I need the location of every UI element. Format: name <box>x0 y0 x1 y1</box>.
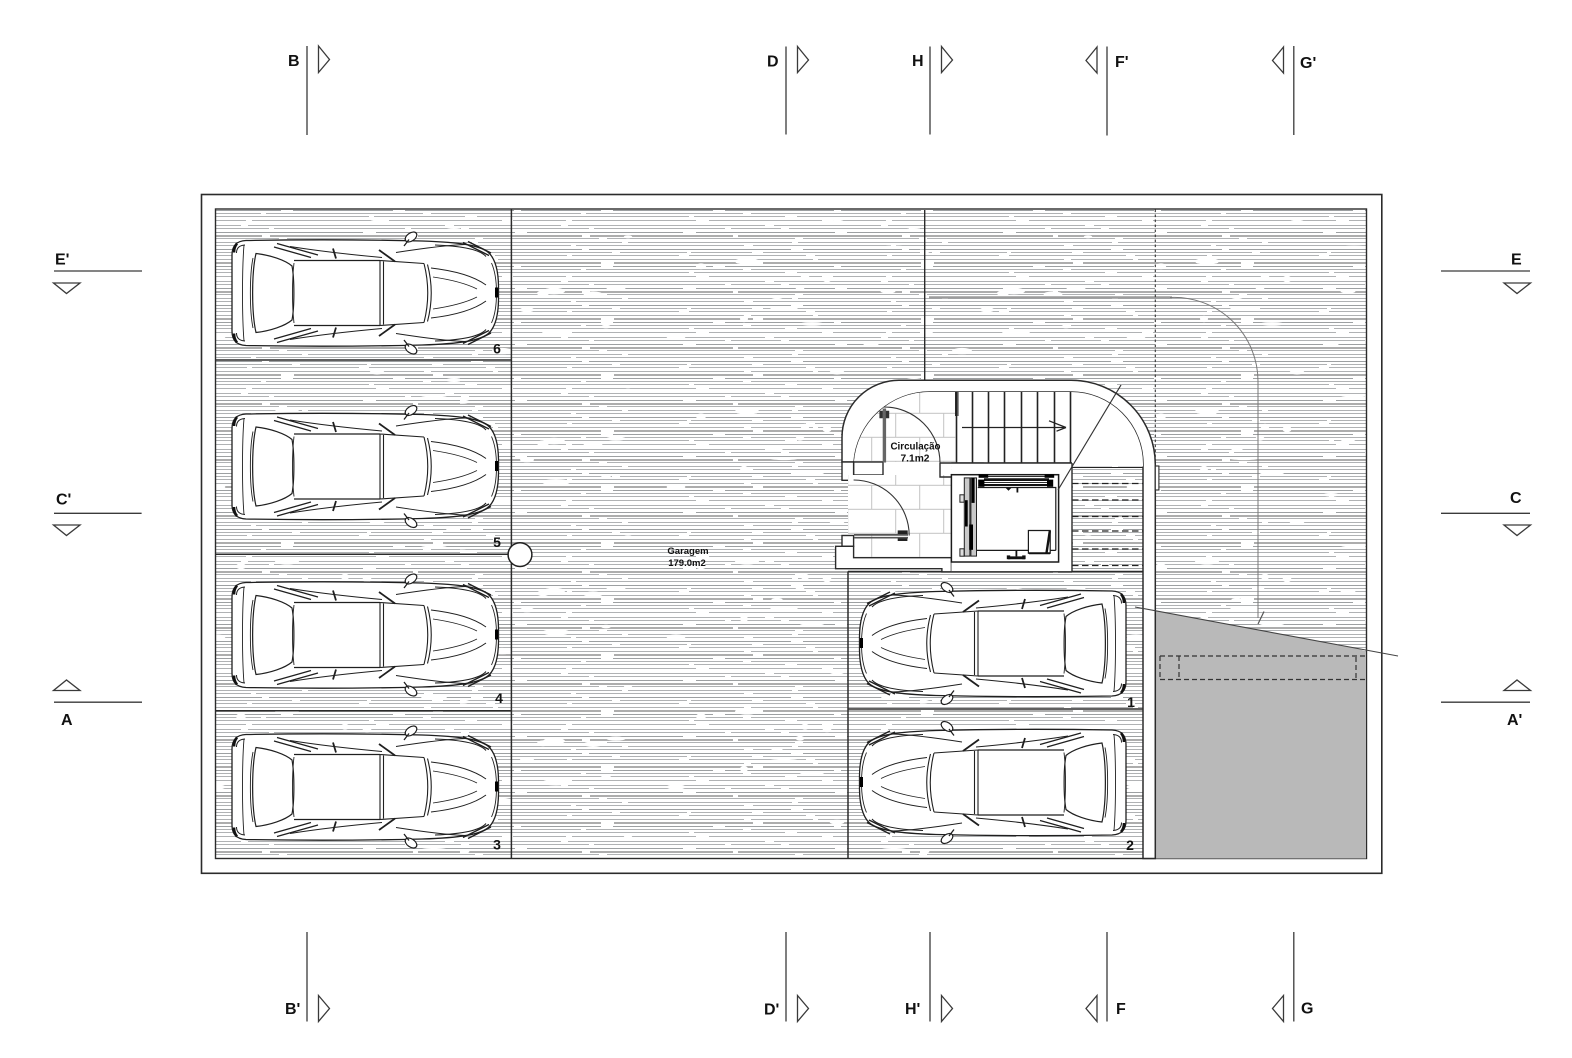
svg-text:6: 6 <box>493 341 501 357</box>
svg-text:7.1m2: 7.1m2 <box>901 454 930 465</box>
svg-text:C: C <box>1510 490 1522 507</box>
svg-text:B: B <box>288 53 300 70</box>
svg-text:A': A' <box>1507 712 1522 729</box>
svg-text:179.0m2: 179.0m2 <box>668 558 706 569</box>
svg-text:G: G <box>1301 1001 1313 1018</box>
svg-text:4: 4 <box>495 690 503 706</box>
svg-text:D': D' <box>764 1002 779 1019</box>
svg-text:Circulação: Circulação <box>891 442 941 453</box>
svg-text:F: F <box>1116 1001 1126 1018</box>
svg-text:B': B' <box>285 1001 300 1018</box>
svg-text:1: 1 <box>1127 694 1135 710</box>
svg-text:E': E' <box>55 252 69 269</box>
svg-text:Garagem: Garagem <box>667 546 708 557</box>
svg-text:3: 3 <box>493 837 501 853</box>
svg-text:2: 2 <box>1126 837 1134 853</box>
svg-text:H: H <box>912 53 924 70</box>
svg-text:5: 5 <box>493 534 501 550</box>
svg-text:A: A <box>61 712 73 729</box>
svg-text:E: E <box>1511 252 1522 269</box>
svg-text:G': G' <box>1300 55 1316 72</box>
svg-text:D: D <box>767 54 779 71</box>
svg-text:F': F' <box>1115 54 1129 71</box>
svg-text:H': H' <box>905 1001 920 1018</box>
svg-text:C': C' <box>56 492 71 509</box>
